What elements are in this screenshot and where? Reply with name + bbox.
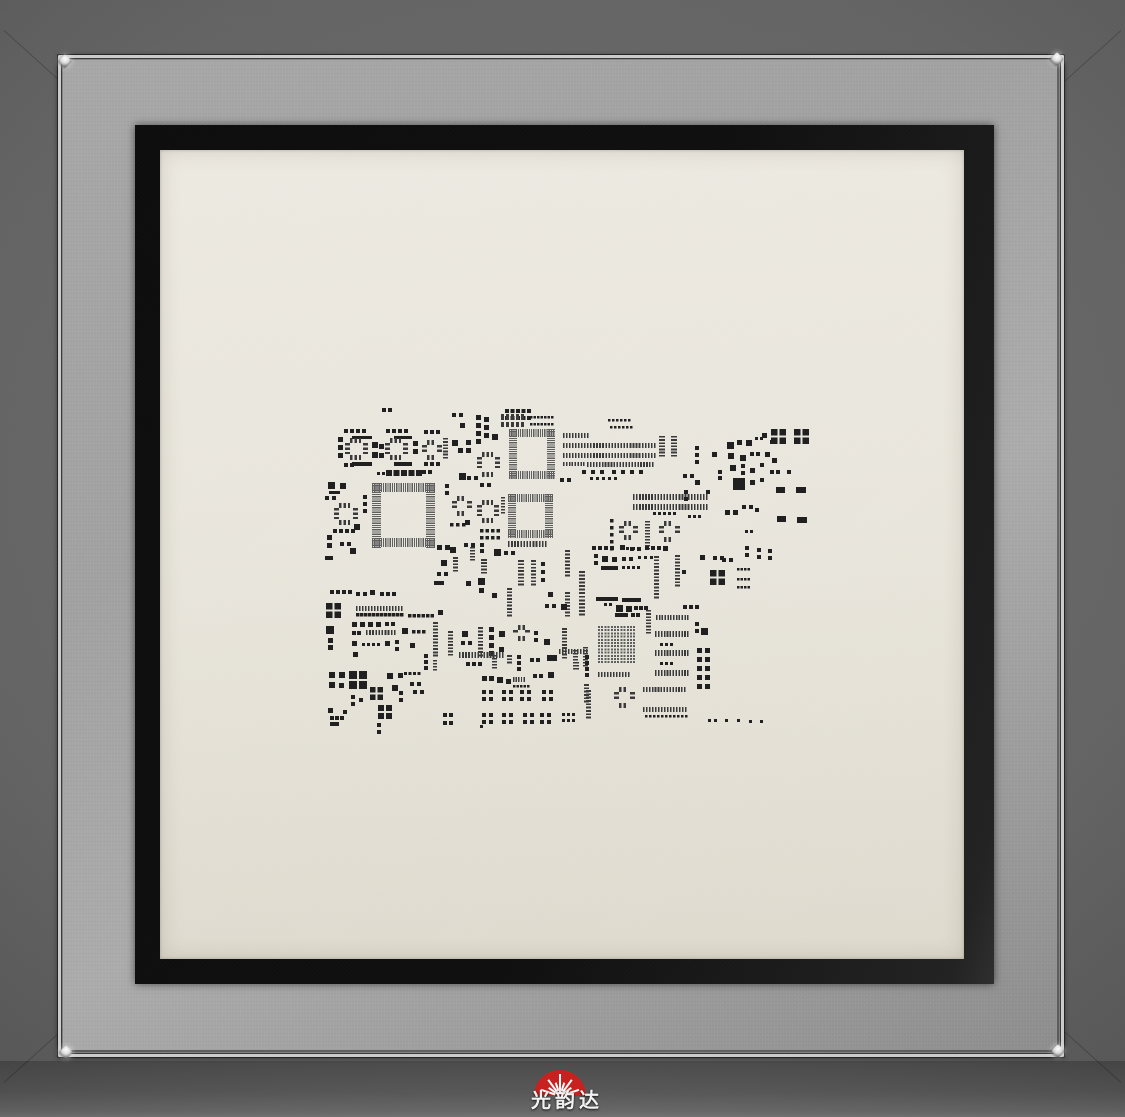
brand-logo: 光韵达 (518, 1066, 612, 1116)
frame-corner-seam (1063, 30, 1122, 83)
aperture-pattern (160, 150, 964, 959)
smt-stencil-photo: 光韵达 (0, 0, 1125, 1117)
logo-text: 光韵达 (518, 1090, 612, 1110)
frame-corner-seam (4, 30, 63, 83)
